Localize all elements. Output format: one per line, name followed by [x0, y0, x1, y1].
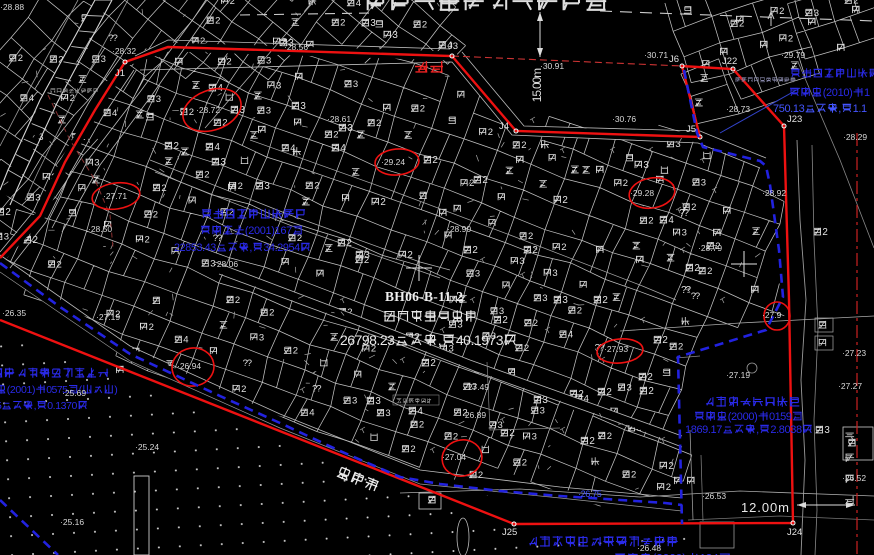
svg-text:(2001): (2001) [7, 384, 36, 396]
svg-text:40.1973: 40.1973 [456, 332, 504, 348]
svg-text:·28.56: ·28.56 [284, 42, 308, 52]
svg-text:2: 2 [364, 255, 369, 266]
svg-text:,: , [756, 424, 759, 436]
svg-text:2: 2 [602, 295, 607, 306]
svg-text:,: , [838, 103, 841, 115]
svg-text:2: 2 [235, 295, 240, 306]
svg-text:·27.93: ·27.93 [604, 344, 628, 354]
svg-text:2: 2 [562, 195, 567, 206]
svg-text:2: 2 [333, 130, 338, 141]
svg-text:2: 2 [293, 346, 298, 357]
svg-text:3: 3 [643, 160, 649, 171]
svg-text:·28.92: ·28.92 [762, 188, 786, 198]
svg-text:2: 2 [478, 470, 483, 481]
svg-text:2: 2 [430, 358, 435, 369]
svg-text:26798.23: 26798.23 [340, 332, 395, 348]
svg-text:1: 1 [864, 87, 870, 99]
svg-text:??: ?? [312, 384, 322, 395]
svg-text:J22: J22 [722, 56, 737, 67]
svg-text:2: 2 [5, 207, 10, 218]
svg-text:4: 4 [340, 143, 346, 154]
svg-text:·28.61: ·28.61 [327, 114, 351, 124]
svg-text:·28.88: ·28.88 [0, 2, 24, 12]
svg-text:·28.73: ·28.73 [726, 104, 750, 114]
svg-text:2: 2 [707, 266, 712, 277]
svg-text:34.2954: 34.2954 [263, 242, 300, 254]
svg-text:2: 2 [482, 175, 487, 186]
svg-text:4: 4 [417, 406, 423, 417]
svg-text:3: 3 [266, 105, 271, 116]
svg-text:12.00m: 12.00m [741, 500, 789, 515]
svg-text:3: 3 [682, 228, 687, 239]
svg-text:4: 4 [668, 215, 674, 226]
svg-text:·29.28: ·29.28 [630, 188, 654, 198]
svg-text:·28.32: ·28.32 [112, 46, 136, 56]
svg-text:2: 2 [145, 234, 150, 245]
svg-text:3: 3 [221, 157, 227, 168]
svg-text:2: 2 [648, 216, 653, 227]
svg-text:2: 2 [647, 372, 652, 383]
svg-text:2: 2 [149, 322, 154, 333]
svg-text:3: 3 [552, 268, 557, 279]
svg-text:·25.16: ·25.16 [60, 517, 84, 527]
svg-text:2: 2 [420, 103, 425, 114]
svg-text:3: 3 [156, 94, 161, 105]
svg-text:2: 2 [57, 259, 62, 270]
svg-text:3: 3 [627, 382, 632, 393]
svg-text:4: 4 [215, 142, 221, 153]
svg-text:3: 3 [375, 396, 381, 407]
svg-text:2.8038: 2.8038 [770, 424, 802, 436]
svg-text:·29.24: ·29.24 [381, 157, 405, 167]
svg-text:2: 2 [380, 197, 385, 208]
svg-text:·29.79: ·29.79 [781, 50, 805, 60]
svg-text:2: 2 [340, 18, 345, 29]
svg-text:·28.90: ·28.90 [447, 224, 471, 234]
svg-text:·26.48: ·26.48 [637, 543, 661, 553]
svg-text:·28.06: ·28.06 [214, 259, 238, 269]
svg-text:J3: J3 [448, 41, 458, 52]
svg-text:2: 2 [314, 181, 319, 192]
svg-text:1869.17: 1869.17 [685, 424, 722, 436]
svg-text:22853.43: 22853.43 [174, 242, 216, 254]
svg-text:2: 2 [522, 457, 527, 468]
svg-text:3: 3 [4, 232, 9, 243]
svg-text:·25.69: ·25.69 [62, 388, 86, 398]
svg-text:·27.19: ·27.19 [96, 312, 120, 322]
svg-text:3: 3 [276, 80, 281, 91]
svg-text:·27.9: ·27.9 [762, 310, 782, 320]
svg-text:2: 2 [18, 53, 23, 64]
svg-text:2: 2 [419, 420, 424, 431]
svg-text:,: , [438, 332, 442, 348]
svg-text:·27.19: ·27.19 [726, 370, 750, 380]
svg-text:2: 2 [528, 231, 533, 242]
svg-text:2: 2 [33, 235, 38, 246]
svg-text:): ) [114, 384, 118, 396]
svg-text:3: 3 [300, 101, 306, 112]
svg-text:0159: 0159 [769, 411, 792, 423]
svg-text:2: 2 [153, 209, 158, 220]
svg-text:3: 3 [392, 30, 398, 41]
svg-text:1.1: 1.1 [853, 103, 868, 115]
svg-text:2: 2 [269, 308, 274, 319]
svg-text:0.1370: 0.1370 [47, 400, 77, 412]
svg-text:5: 5 [0, 400, 2, 412]
svg-text:J23: J23 [787, 114, 802, 125]
svg-text:3: 3 [264, 181, 270, 192]
svg-text:2: 2 [668, 461, 673, 472]
svg-text:2: 2 [521, 140, 526, 151]
svg-text:·28.79: ·28.79 [698, 243, 722, 253]
svg-text:3: 3 [701, 177, 706, 188]
svg-text:2: 2 [779, 6, 784, 17]
svg-text:2: 2 [853, 0, 858, 7]
svg-text:3: 3 [385, 408, 390, 419]
svg-text:4: 4 [309, 408, 314, 419]
svg-text:2: 2 [410, 444, 415, 455]
svg-text:(2001)167: (2001)167 [245, 225, 292, 237]
svg-text:2: 2 [230, 0, 235, 7]
svg-text:3: 3 [532, 432, 537, 443]
svg-text:3: 3 [824, 425, 830, 436]
svg-text:·26.94: ·26.94 [177, 361, 201, 371]
svg-text:3: 3 [499, 306, 504, 317]
svg-text:·25.24: ·25.24 [135, 442, 159, 452]
svg-text:??: ?? [691, 291, 701, 302]
svg-text:3: 3 [266, 55, 271, 66]
svg-text:3: 3 [540, 406, 545, 417]
svg-text:·27.04: ·27.04 [442, 452, 466, 462]
svg-text:2: 2 [623, 178, 628, 189]
svg-text:2: 2 [189, 107, 194, 118]
svg-text:J24: J24 [787, 527, 802, 538]
svg-text:·26.35: ·26.35 [2, 308, 26, 318]
svg-text:J25: J25 [502, 527, 517, 538]
svg-text:BH06-B-11-2: BH06-B-11-2 [385, 289, 463, 304]
svg-text:4: 4 [356, 0, 361, 9]
svg-text:·28.50: ·28.50 [88, 224, 112, 234]
svg-text:2: 2 [739, 19, 744, 30]
svg-text:2: 2 [561, 242, 566, 253]
svg-text:·26.75: ·26.75 [578, 489, 602, 499]
svg-text:2: 2 [589, 436, 594, 447]
svg-text:2: 2 [204, 170, 209, 181]
svg-text:2: 2 [691, 202, 696, 213]
svg-text:2: 2 [662, 335, 667, 346]
svg-text:2: 2 [215, 16, 220, 27]
svg-text:2: 2 [238, 181, 243, 192]
svg-text:·26.53: ·26.53 [702, 491, 726, 501]
svg-text:2: 2 [533, 318, 538, 329]
svg-text:2: 2 [376, 118, 381, 129]
svg-text:(2000): (2000) [728, 411, 758, 423]
svg-text:4: 4 [112, 108, 117, 119]
svg-text:2: 2 [432, 155, 437, 166]
svg-text:4: 4 [29, 93, 34, 104]
svg-text:·26.52: ·26.52 [842, 473, 866, 483]
svg-text:2: 2 [226, 57, 231, 68]
svg-text:2: 2 [488, 127, 493, 138]
svg-text:3: 3 [542, 293, 547, 304]
svg-text:3: 3 [259, 332, 264, 343]
svg-text:J4: J4 [499, 121, 509, 132]
svg-text:3: 3 [562, 295, 568, 306]
svg-text:3: 3 [475, 268, 480, 279]
svg-text:3: 3 [353, 79, 358, 90]
svg-text:J6: J6 [669, 54, 679, 65]
svg-text:4: 4 [183, 335, 188, 346]
svg-text:·28.29: ·28.29 [843, 132, 867, 142]
svg-text:·27.49: ·27.49 [465, 382, 489, 392]
svg-text:2: 2 [822, 227, 827, 238]
svg-text:2: 2 [422, 19, 427, 30]
svg-text:3: 3 [814, 8, 819, 19]
svg-text:3: 3 [519, 256, 524, 267]
svg-text:2: 2 [606, 387, 611, 398]
svg-text:3: 3 [352, 396, 357, 407]
svg-text:·27.23: ·27.23 [842, 348, 866, 358]
svg-text:·27.27: ·27.27 [838, 381, 862, 391]
svg-text:2: 2 [631, 469, 636, 480]
svg-text:·30.76: ·30.76 [612, 114, 636, 124]
svg-text:2: 2 [346, 238, 351, 249]
svg-text:2: 2 [469, 178, 474, 189]
svg-text:·26.89: ·26.89 [462, 410, 486, 420]
svg-text:??: ?? [243, 358, 253, 369]
svg-text:15.00m: 15.00m [530, 68, 544, 102]
svg-text:3: 3 [101, 54, 106, 65]
svg-text:2: 2 [472, 245, 477, 256]
svg-text:4: 4 [290, 143, 295, 154]
svg-text:3: 3 [347, 123, 353, 134]
svg-text:·30.91: ·30.91 [540, 61, 564, 71]
svg-text:·27.71: ·27.71 [103, 191, 127, 201]
svg-text:4: 4 [568, 329, 573, 340]
svg-text:2: 2 [174, 141, 179, 152]
svg-text:2: 2 [648, 386, 653, 397]
svg-text:·30.71: ·30.71 [644, 50, 668, 60]
svg-text:2: 2 [666, 482, 671, 493]
svg-text:,: , [249, 242, 252, 254]
svg-text:,: , [34, 400, 37, 412]
svg-text:J5: J5 [686, 124, 696, 135]
svg-text:2: 2 [241, 384, 246, 395]
svg-text:2: 2 [524, 343, 529, 354]
svg-text:(2010): (2010) [823, 87, 853, 99]
svg-text:2: 2 [577, 305, 582, 316]
svg-text:2: 2 [788, 33, 793, 44]
svg-text:??: ?? [108, 33, 118, 44]
svg-text:2: 2 [678, 342, 683, 353]
svg-text:2: 2 [607, 431, 612, 442]
svg-text:·28.72: ·28.72 [196, 105, 220, 115]
svg-text:J1: J1 [115, 68, 125, 79]
svg-text:2: 2 [161, 183, 166, 194]
